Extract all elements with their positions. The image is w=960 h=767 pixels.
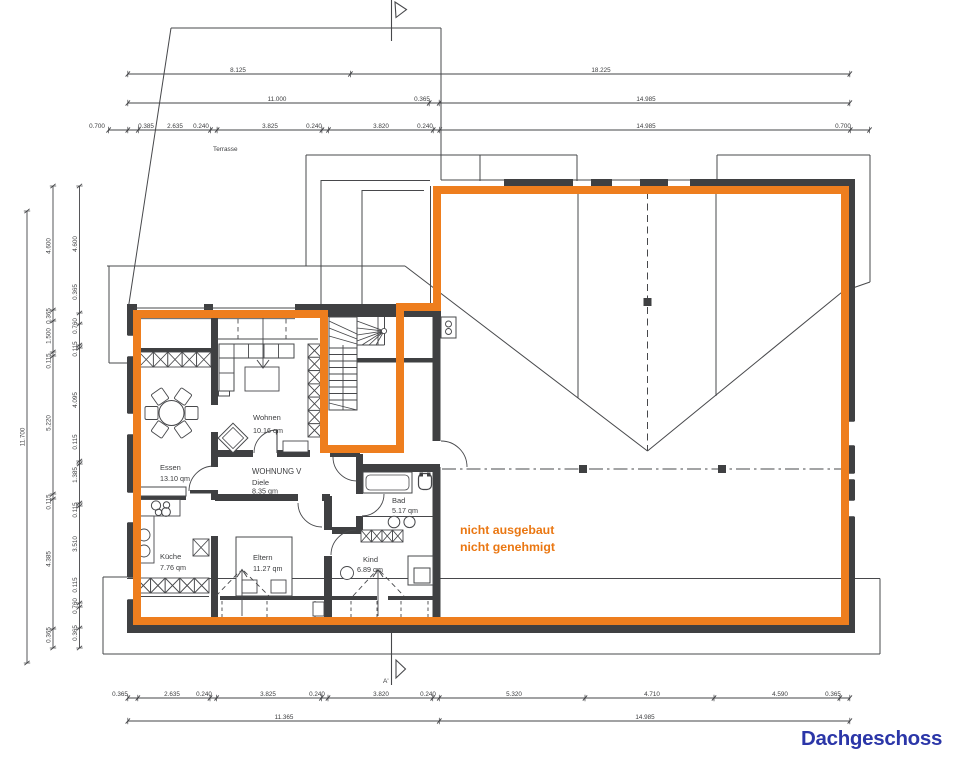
svg-text:4.600: 4.600 (72, 236, 79, 252)
svg-text:nicht genehmigt: nicht genehmigt (460, 540, 555, 554)
svg-text:0.365: 0.365 (825, 691, 841, 698)
svg-text:Eltern: Eltern (253, 553, 273, 562)
svg-text:0.385: 0.385 (138, 123, 154, 130)
svg-text:4.600: 4.600 (46, 238, 53, 254)
svg-text:Dachgeschoss: Dachgeschoss (801, 727, 942, 750)
svg-text:0.115: 0.115 (72, 434, 79, 450)
svg-text:0.115: 0.115 (46, 353, 53, 369)
svg-text:0.240: 0.240 (420, 691, 436, 698)
svg-text:2.635: 2.635 (167, 123, 183, 130)
svg-text:3.825: 3.825 (262, 123, 278, 130)
svg-text:1.500: 1.500 (46, 328, 53, 344)
svg-text:0.760: 0.760 (72, 598, 79, 614)
svg-text:0.240: 0.240 (417, 123, 433, 130)
svg-text:Terrasse: Terrasse (213, 146, 238, 153)
svg-text:0.240: 0.240 (196, 691, 212, 698)
svg-text:4.095: 4.095 (72, 392, 79, 408)
svg-text:0.115: 0.115 (72, 341, 79, 357)
svg-text:0.700: 0.700 (89, 123, 105, 130)
svg-text:1.385: 1.385 (72, 467, 79, 483)
svg-text:0.365: 0.365 (414, 96, 430, 103)
svg-text:11.365: 11.365 (275, 714, 294, 721)
svg-text:7.76 qm: 7.76 qm (160, 563, 186, 572)
svg-text:8.125: 8.125 (230, 67, 246, 74)
svg-text:Küche: Küche (160, 552, 181, 561)
svg-text:0.760: 0.760 (72, 318, 79, 334)
svg-text:11.000: 11.000 (268, 96, 287, 103)
svg-text:5.220: 5.220 (46, 415, 53, 431)
svg-text:0.365: 0.365 (46, 627, 53, 643)
svg-text:14.985: 14.985 (635, 714, 655, 721)
svg-text:14.985: 14.985 (636, 123, 656, 130)
svg-text:Wohnen: Wohnen (253, 413, 281, 422)
svg-text:18.225: 18.225 (591, 67, 611, 74)
svg-text:3.820: 3.820 (373, 691, 389, 698)
svg-text:14.985: 14.985 (636, 96, 656, 103)
svg-text:0.115: 0.115 (72, 502, 79, 518)
svg-text:13.10 qm: 13.10 qm (160, 474, 190, 483)
svg-text:8.35 qm: 8.35 qm (252, 487, 278, 496)
svg-text:0.365: 0.365 (46, 308, 53, 324)
svg-text:0.240: 0.240 (306, 123, 322, 130)
svg-text:11.27 qm: 11.27 qm (253, 564, 282, 573)
svg-text:Bad: Bad (392, 496, 405, 505)
svg-text:WOHNUNG V: WOHNUNG V (252, 467, 302, 476)
svg-text:nicht ausgebaut: nicht ausgebaut (460, 523, 554, 537)
svg-text:0.240: 0.240 (193, 123, 209, 130)
svg-text:Kind: Kind (363, 555, 378, 564)
svg-text:0.365: 0.365 (112, 691, 128, 698)
svg-text:3.825: 3.825 (260, 691, 276, 698)
svg-text:10.16 qm: 10.16 qm (253, 426, 283, 435)
svg-text:4.710: 4.710 (644, 691, 660, 698)
svg-text:4.385: 4.385 (46, 551, 53, 567)
svg-text:Essen: Essen (160, 463, 181, 472)
svg-text:3.820: 3.820 (373, 123, 389, 130)
svg-text:4.590: 4.590 (772, 691, 788, 698)
svg-text:0.240: 0.240 (309, 691, 325, 698)
svg-text:5.320: 5.320 (506, 691, 522, 698)
svg-text:0.115: 0.115 (72, 577, 79, 593)
svg-text:0.700: 0.700 (835, 123, 851, 130)
svg-text:2.635: 2.635 (164, 691, 180, 698)
svg-text:0.365: 0.365 (72, 284, 79, 300)
svg-text:6.89 qm: 6.89 qm (357, 565, 383, 574)
svg-text:0.365: 0.365 (72, 625, 79, 641)
svg-text:3.510: 3.510 (72, 536, 79, 552)
svg-text:A': A' (383, 678, 389, 685)
svg-text:5.17 qm: 5.17 qm (392, 506, 418, 515)
svg-text:11.700: 11.700 (20, 427, 27, 446)
svg-text:0.115: 0.115 (46, 494, 53, 510)
